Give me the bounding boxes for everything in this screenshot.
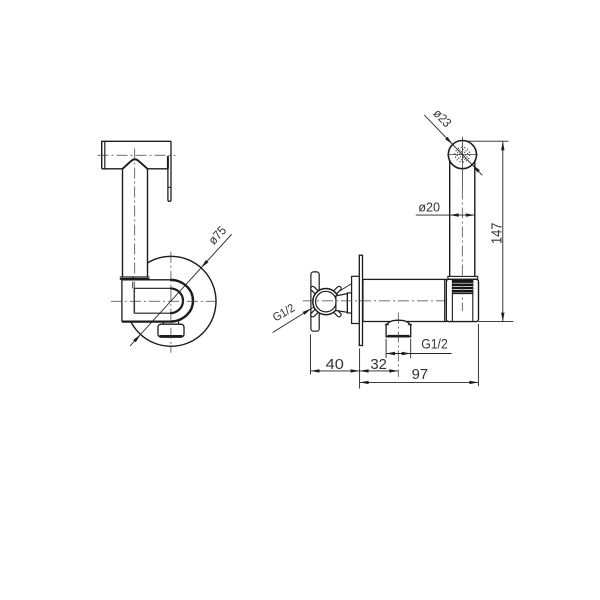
svg-text:147: 147 [488, 223, 505, 245]
svg-text:97: 97 [412, 366, 429, 383]
svg-text:40: 40 [326, 356, 344, 373]
svg-text:32: 32 [370, 356, 387, 373]
svg-text:ø20: ø20 [418, 201, 440, 215]
svg-text:G1/2: G1/2 [421, 337, 448, 352]
